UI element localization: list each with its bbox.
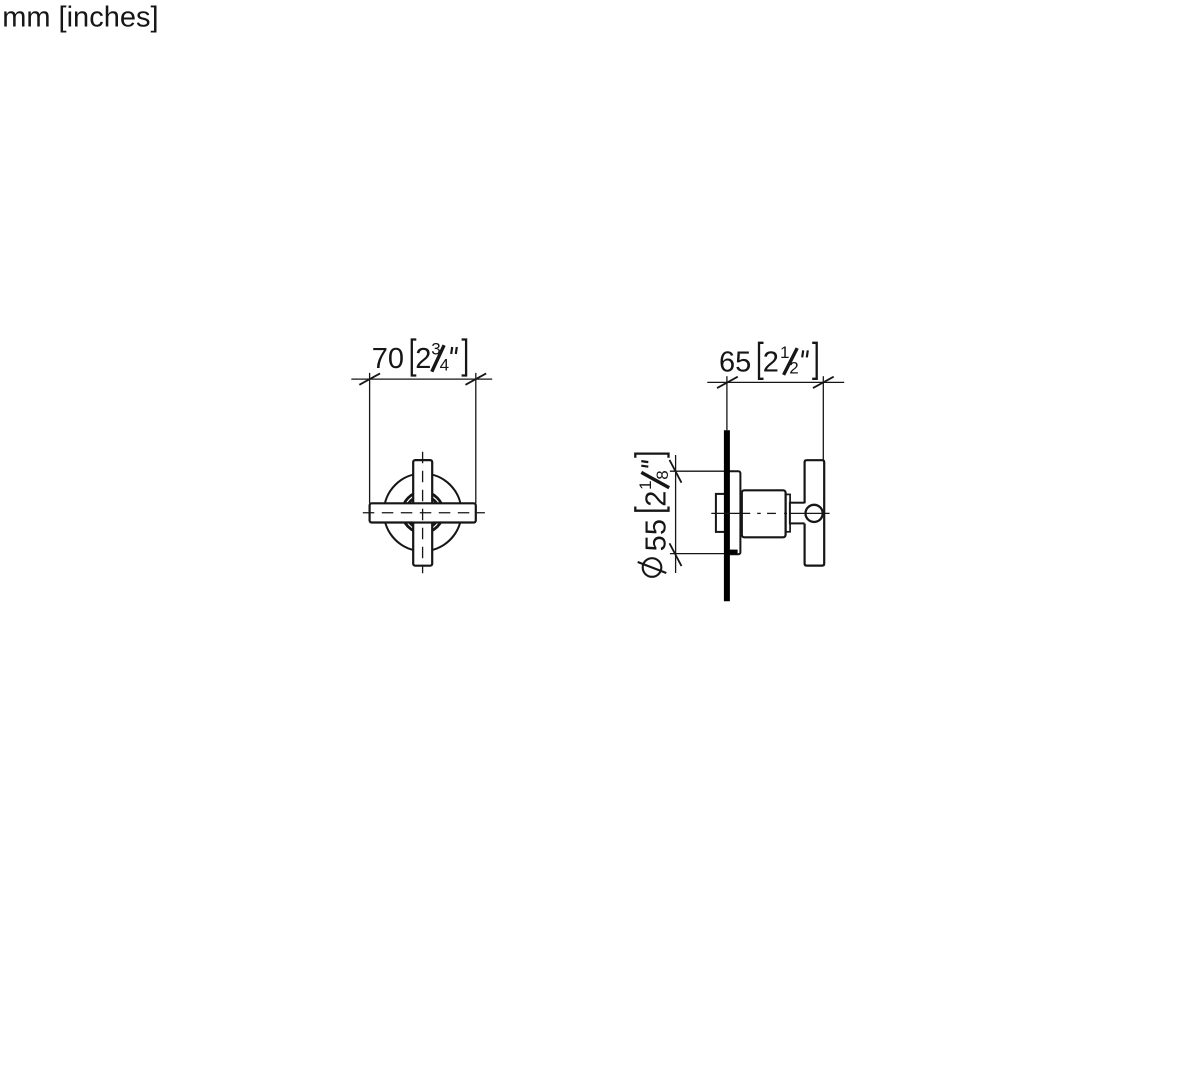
svg-text:65: 65 xyxy=(719,346,751,378)
svg-text:4: 4 xyxy=(440,355,449,374)
svg-text:2: 2 xyxy=(763,346,779,378)
svg-text:1: 1 xyxy=(636,480,655,489)
svg-text:2: 2 xyxy=(415,343,431,375)
svg-text:8: 8 xyxy=(653,470,672,479)
svg-text:mm [inches]: mm [inches] xyxy=(2,1,158,33)
svg-text:2: 2 xyxy=(640,491,672,507)
svg-text:1: 1 xyxy=(780,343,789,362)
svg-text:55: 55 xyxy=(640,519,672,551)
svg-text:70: 70 xyxy=(372,343,404,375)
